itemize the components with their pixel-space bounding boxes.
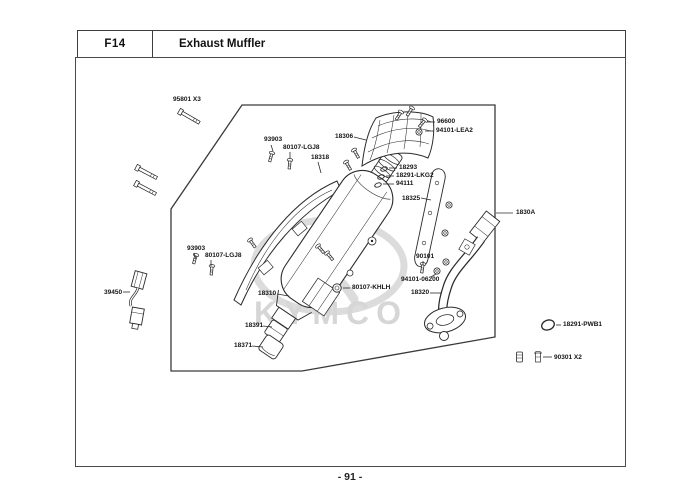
part-label-80107-lgj8-left: 80107-LGJ8 (205, 252, 242, 259)
leader-line-93903-top (271, 145, 273, 151)
flange-bolt-icon (178, 108, 201, 125)
washer-icon (446, 202, 452, 208)
stay-plate (415, 169, 446, 267)
exhaust-muffler-diagram: KYMCO (0, 0, 700, 495)
part-label-18371: 18371 (234, 342, 252, 349)
part-label-94111: 94111 (396, 180, 413, 187)
oxygen-sensor (129, 271, 147, 330)
part-label-96600: 96600 (437, 118, 455, 125)
leader-line-18306 (354, 137, 366, 140)
washer-icon (416, 129, 422, 135)
part-label-18318: 18318 (311, 154, 329, 161)
part-label-94101-06200: 94101-06200 (401, 276, 439, 283)
screw-icon (343, 159, 353, 171)
part-label-18310: 18310 (258, 290, 276, 297)
flange-bolt-icon (135, 164, 159, 180)
part-label-39450: 39450 (104, 289, 122, 296)
screw-icon (286, 158, 292, 169)
screw-icon (247, 237, 258, 249)
part-label-90301-x2: 90301 X2 (554, 354, 582, 361)
part-label-90101: 90101 (416, 253, 434, 260)
screw-icon (419, 262, 426, 273)
screw-icon (191, 253, 199, 265)
part-label-93903-top: 93903 (264, 136, 282, 143)
screw-icon (267, 151, 275, 163)
catalog-page: F14 Exhaust Muffler (0, 0, 700, 495)
part-label-94101-lea2: 94101-LEA2 (436, 127, 473, 134)
part-label-80107-khlh: 80107-KHLH (352, 284, 390, 291)
stud-bolt-icon (535, 351, 541, 362)
part-label-18291-pwb1: 18291-PWB1 (563, 321, 602, 328)
part-label-80107-lgj8-top: 80107-LGJ8 (283, 144, 320, 151)
o-ring-icon (540, 318, 555, 331)
part-label-18320: 18320 (411, 289, 429, 296)
part-label-95801-x3: 95801 X3 (173, 96, 201, 103)
flange-bolt-icon (134, 180, 158, 196)
part-label-93903-left: 93903 (187, 245, 205, 252)
spacer-icon (517, 352, 523, 362)
part-label-18291-lkg2: 18291-LKG2 (396, 172, 434, 179)
screw-icon (208, 264, 214, 275)
washer-icon (443, 259, 449, 265)
leader-line-18318 (318, 162, 321, 173)
washer-icon (442, 230, 448, 236)
washer-icon (434, 268, 440, 274)
part-label-18293: 18293 (399, 164, 417, 171)
part-label-18325: 18325 (402, 195, 420, 202)
part-label-18391: 18391 (245, 322, 263, 329)
screw-icon (351, 147, 361, 159)
part-label-1830a: 1830A (516, 209, 535, 216)
part-label-18306: 18306 (335, 133, 353, 140)
page-number: - 91 - (0, 471, 700, 483)
hex-bolt-icon (333, 284, 341, 292)
